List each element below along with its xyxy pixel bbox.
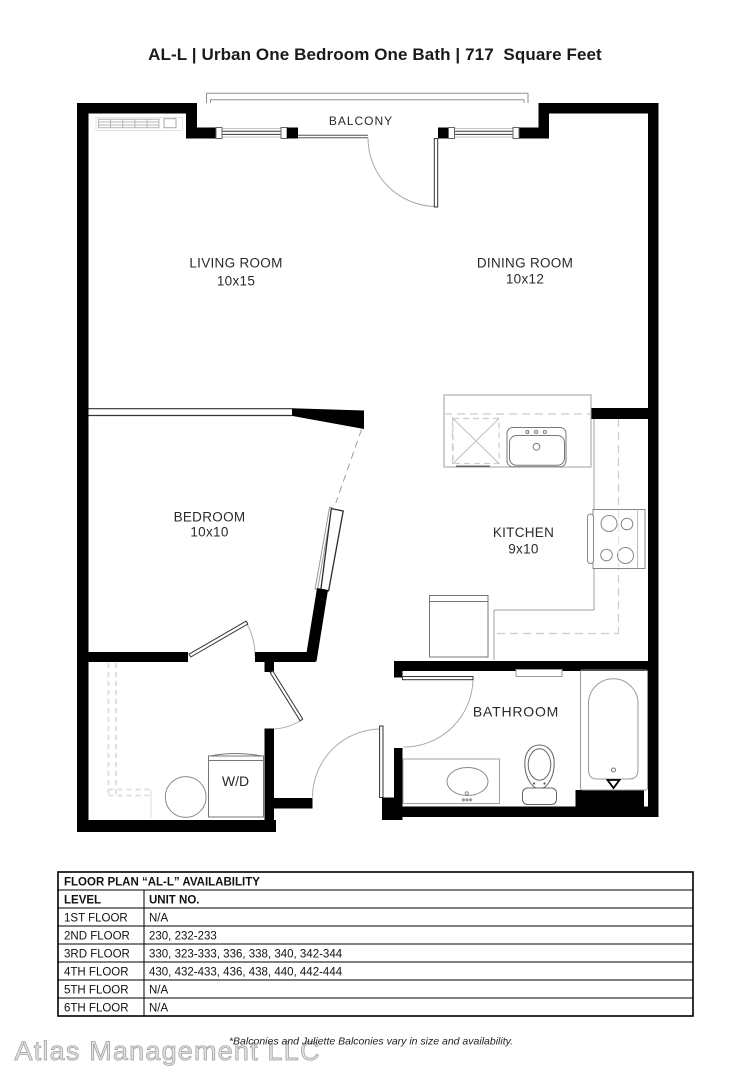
svg-text:LIVING ROOM: LIVING ROOM [189, 256, 282, 271]
svg-text:N/A: N/A [149, 985, 169, 997]
svg-text:W/D: W/D [222, 773, 249, 789]
svg-text:*Balconies and Juliette Balcon: *Balconies and Juliette Balconies vary i… [229, 1036, 513, 1048]
svg-text:BATHROOM: BATHROOM [473, 704, 559, 720]
svg-text:DINING ROOM: DINING ROOM [477, 256, 573, 271]
svg-text:4TH FLOOR: 4TH FLOOR [64, 967, 129, 979]
svg-text:2ND FLOOR: 2ND FLOOR [64, 931, 130, 943]
svg-text:5TH FLOOR: 5TH FLOOR [64, 985, 129, 997]
svg-text:10x12: 10x12 [506, 272, 544, 287]
svg-text:3RD FLOOR: 3RD FLOOR [64, 949, 130, 961]
svg-text:230, 232-233: 230, 232-233 [149, 931, 217, 943]
svg-text:AL-L | Urban One Bedroom One B: AL-L | Urban One Bedroom One Bath | 717 … [148, 45, 602, 64]
svg-text:UNIT NO.: UNIT NO. [149, 895, 199, 907]
svg-text:330, 323-333, 336, 338, 340, 3: 330, 323-333, 336, 338, 340, 342-344 [149, 949, 343, 961]
svg-text:LEVEL: LEVEL [64, 895, 101, 907]
svg-text:1ST FLOOR: 1ST FLOOR [64, 913, 128, 925]
svg-text:FLOOR PLAN “AL-L” AVAILABILITY: FLOOR PLAN “AL-L” AVAILABILITY [64, 877, 260, 889]
svg-text:6TH FLOOR: 6TH FLOOR [64, 1003, 129, 1015]
svg-text:BEDROOM: BEDROOM [174, 510, 246, 525]
svg-text:KITCHEN: KITCHEN [493, 525, 554, 540]
svg-text:10x10: 10x10 [190, 525, 228, 540]
svg-text:9x10: 9x10 [508, 542, 538, 557]
svg-text:N/A: N/A [149, 913, 169, 925]
svg-text:BALCONY: BALCONY [329, 114, 393, 128]
svg-text:430, 432-433, 436, 438, 440, 4: 430, 432-433, 436, 438, 440, 442-444 [149, 967, 343, 979]
svg-text:N/A: N/A [149, 1003, 169, 1015]
svg-text:10x15: 10x15 [217, 274, 255, 289]
